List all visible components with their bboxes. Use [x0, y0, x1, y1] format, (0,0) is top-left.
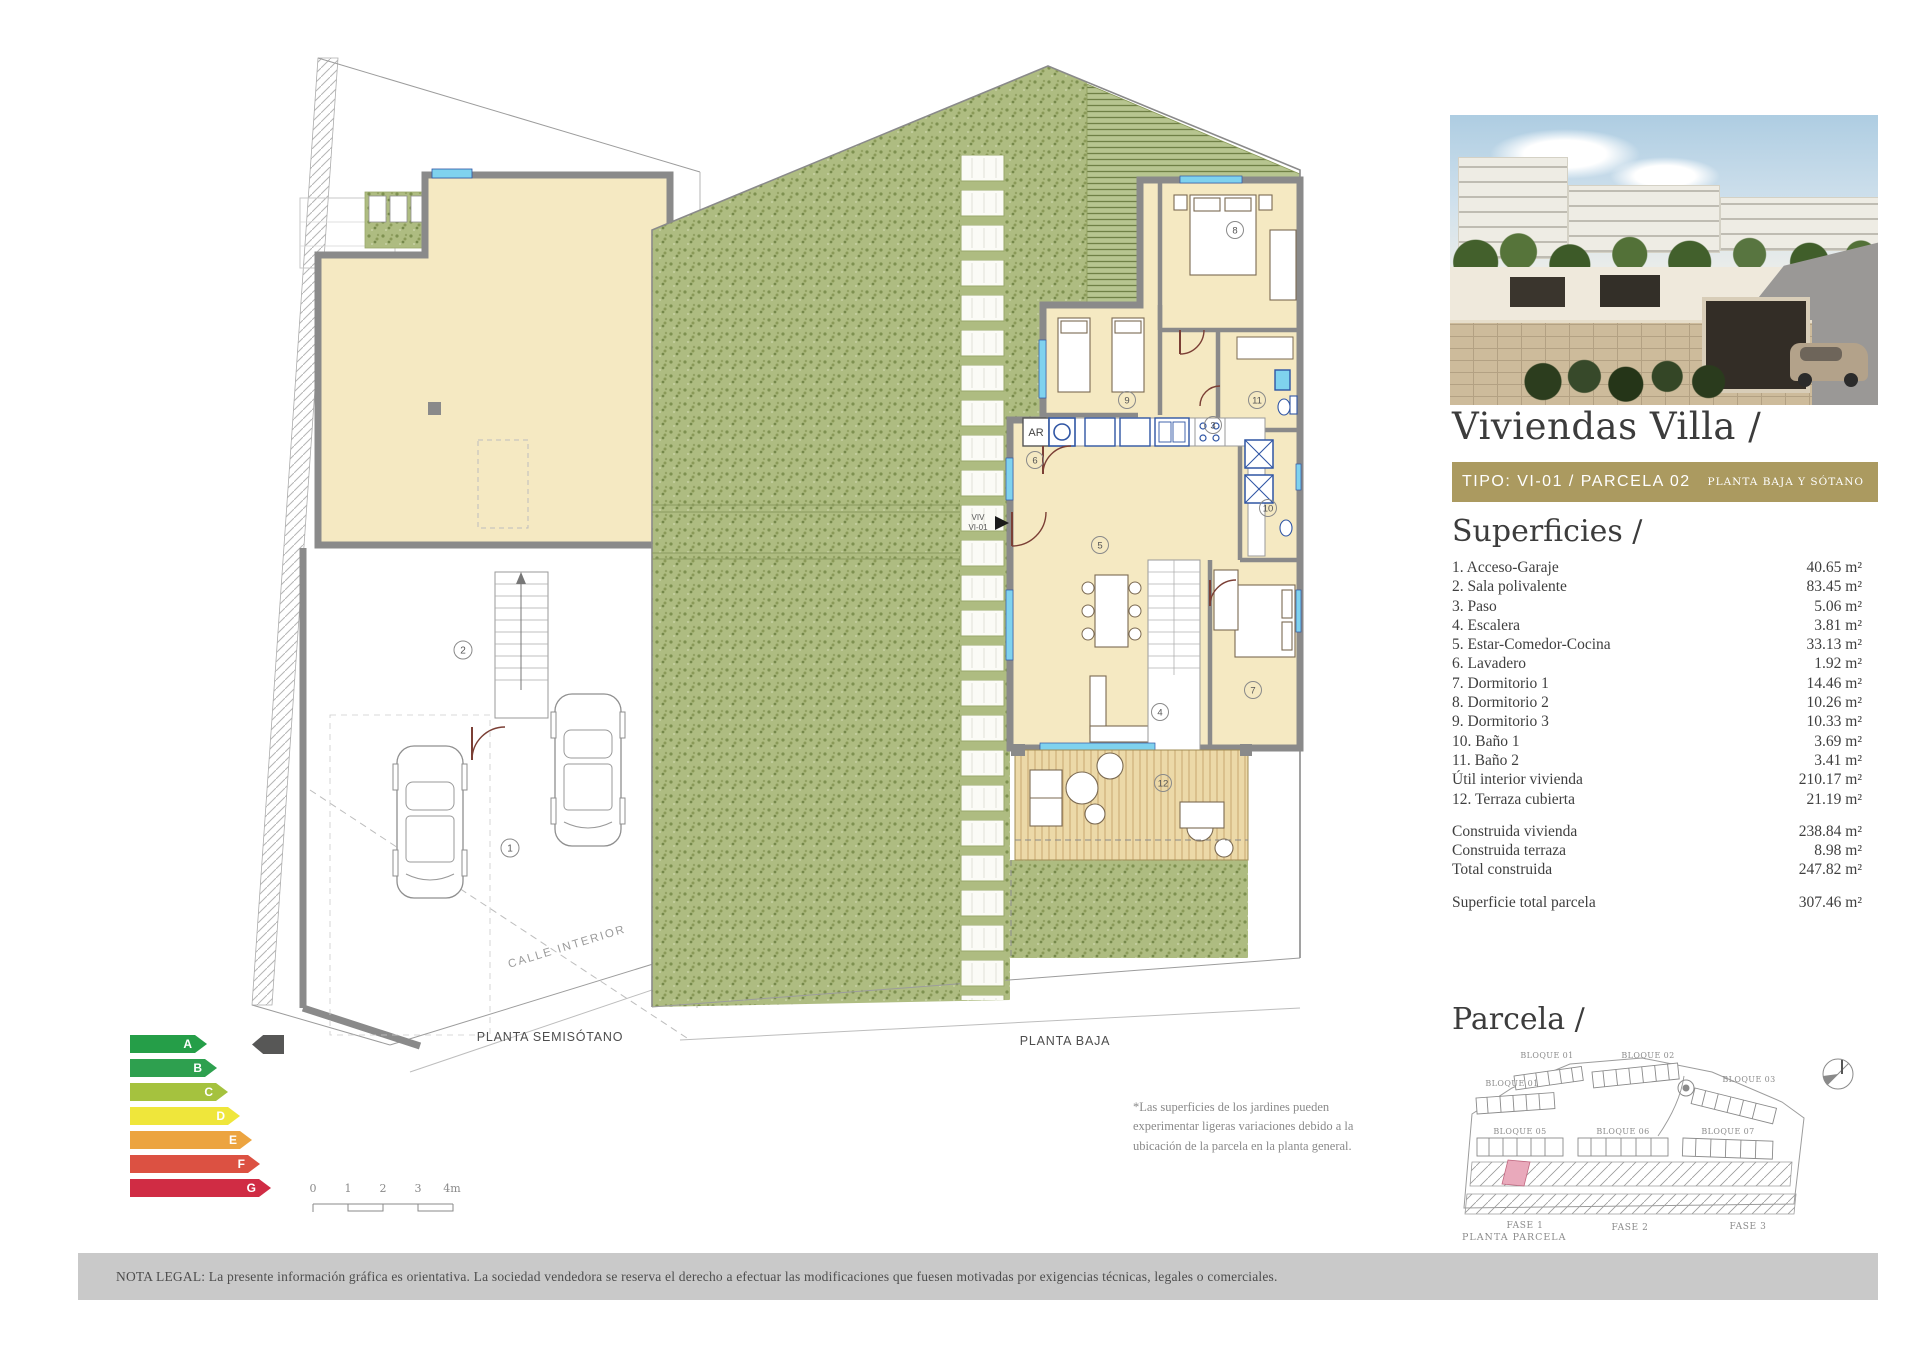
- energy-row-a: A: [130, 1035, 320, 1053]
- table-row: 10. Baño 13.69 m²: [1452, 732, 1862, 751]
- svg-text:1: 1: [345, 1182, 352, 1195]
- superficies-heading: Superficies /: [1452, 514, 1642, 549]
- parking-row: [1465, 1194, 1796, 1214]
- energy-row-e: E: [130, 1131, 320, 1149]
- window: [432, 169, 472, 178]
- pillar: [428, 402, 441, 415]
- bushes: [1520, 353, 1750, 405]
- wheel: [1798, 373, 1812, 387]
- energy-row-b: B: [130, 1059, 320, 1077]
- room-number: 2: [454, 641, 472, 659]
- svg-text:11: 11: [1252, 396, 1262, 407]
- svg-text:8: 8: [1232, 226, 1237, 237]
- table-row: Útil interior vivienda210.17 m²: [1452, 770, 1862, 789]
- svg-text:9: 9: [1124, 396, 1129, 407]
- table-row: Total construida247.82 m²: [1452, 860, 1862, 879]
- table-row: 9. Dormitorio 310.33 m²: [1452, 712, 1862, 731]
- energy-arrow-icon: F: [130, 1155, 260, 1173]
- svg-text:VI-01: VI-01: [968, 523, 988, 532]
- caption-semisotano: PLANTA SEMISÓTANO: [380, 1030, 720, 1044]
- svg-text:5: 5: [1097, 541, 1102, 552]
- car-icon: [551, 694, 625, 846]
- table-row: 5. Estar-Comedor-Cocina33.13 m²: [1452, 635, 1862, 654]
- svg-text:BLOQUE 03: BLOQUE 03: [1722, 1075, 1775, 1084]
- energy-arrow-icon: D: [130, 1107, 240, 1125]
- type-label: TIPO: VI-01 / PARCELA 02: [1452, 473, 1691, 491]
- villa-window: [1600, 275, 1660, 307]
- bloque-labels: BLOQUE 01 BLOQUE 02 BLOQUE 03 BLOQUE 01 …: [1485, 1051, 1775, 1136]
- floor-label: PLANTA BAJA Y SÓTANO: [1708, 476, 1878, 488]
- table-row-grand-total: Superficie total parcela307.46 m²: [1452, 893, 1862, 912]
- svg-text:BLOQUE 07: BLOQUE 07: [1701, 1127, 1754, 1136]
- svg-text:BLOQUE 01: BLOQUE 01: [1520, 1051, 1573, 1060]
- svg-text:BLOQUE 01: BLOQUE 01: [1485, 1079, 1538, 1088]
- energy-rating-chart: A B C D E F: [130, 1035, 320, 1203]
- table-row: 7. Dormitorio 114.46 m²: [1452, 674, 1862, 693]
- table-row: Construida terraza8.98 m²: [1452, 841, 1862, 860]
- svg-text:3: 3: [415, 1182, 422, 1195]
- table-row: Construida vivienda238.84 m²: [1452, 822, 1862, 841]
- site-road: [1658, 1076, 1684, 1136]
- svg-text:0: 0: [310, 1182, 317, 1195]
- svg-text:1: 1: [507, 844, 513, 855]
- room-number: 1: [501, 839, 519, 857]
- energy-arrow-icon: A: [130, 1035, 207, 1053]
- garden-footnote: *Las superficies de los jardines pueden …: [1133, 1098, 1383, 1156]
- svg-text:FASE 1: FASE 1: [1507, 1221, 1544, 1231]
- north-compass-icon: [1823, 1059, 1853, 1089]
- parcela-heading: Parcela /: [1452, 1002, 1585, 1037]
- svg-text:4m: 4m: [443, 1182, 461, 1195]
- driveway-dashed: [310, 790, 690, 1040]
- caption-baja: PLANTA BAJA: [950, 1034, 1180, 1048]
- hero-photo: [1450, 115, 1878, 405]
- svg-text:4: 4: [1157, 708, 1162, 719]
- garden-strip: [1010, 860, 1248, 958]
- svg-text:12: 12: [1158, 779, 1169, 790]
- table-row: 4. Escalera3.81 m²: [1452, 616, 1862, 635]
- wheel: [1844, 373, 1858, 387]
- car: [1790, 343, 1868, 381]
- svg-text:2: 2: [380, 1182, 387, 1195]
- svg-text:VIV: VIV: [972, 513, 986, 522]
- street-label: CALLE INTERIOR: [507, 923, 628, 970]
- door: [472, 727, 505, 760]
- table-row: 12. Terraza cubierta21.19 m²: [1452, 790, 1862, 809]
- page-title: Viviendas Villa /: [1452, 405, 1761, 448]
- table-row: 2. Sala polivalente83.45 m²: [1452, 577, 1862, 596]
- svg-text:3: 3: [1210, 421, 1215, 432]
- svg-text:FASE 2: FASE 2: [1612, 1223, 1649, 1233]
- energy-row-d: D: [130, 1107, 320, 1125]
- table-row: 11. Baño 23.41 m²: [1452, 751, 1862, 770]
- site-plan-caption: PLANTA PARCELA: [1462, 1232, 1566, 1243]
- energy-pointer-icon: [252, 1035, 284, 1054]
- table-row: 8. Dormitorio 210.26 m²: [1452, 693, 1862, 712]
- ar-label: AR: [1028, 427, 1043, 439]
- svg-text:10: 10: [1263, 504, 1274, 515]
- energy-row-g: G: [130, 1179, 320, 1197]
- brochure-page: 2 1 CALLE INTERIOR: [0, 0, 1920, 1357]
- svg-text:7: 7: [1250, 686, 1255, 697]
- table-row: 6. Lavadero1.92 m²: [1452, 654, 1862, 673]
- energy-row-f: F: [130, 1155, 320, 1173]
- type-bar: TIPO: VI-01 / PARCELA 02 PLANTA BAJA Y S…: [1452, 462, 1878, 502]
- svg-text:2: 2: [460, 646, 466, 657]
- energy-arrow-icon: B: [130, 1059, 217, 1077]
- svg-text:FASE 3: FASE 3: [1730, 1222, 1767, 1232]
- energy-arrow-icon: C: [130, 1083, 228, 1101]
- terrace-deck: [1011, 744, 1252, 860]
- svg-text:6: 6: [1032, 456, 1037, 467]
- table-row: 3. Paso5.06 m²: [1452, 597, 1862, 616]
- svg-text:BLOQUE 06: BLOQUE 06: [1596, 1127, 1649, 1136]
- site-plan: BLOQUE 01 BLOQUE 02 BLOQUE 03 BLOQUE 01 …: [1452, 1046, 1878, 1246]
- scale-bar: 0 1 2 3 4m: [300, 1178, 475, 1223]
- villa-window: [1510, 277, 1565, 307]
- energy-row-c: C: [130, 1083, 320, 1101]
- svg-text:BLOQUE 02: BLOQUE 02: [1621, 1051, 1674, 1060]
- svg-text:BLOQUE 05: BLOQUE 05: [1493, 1127, 1546, 1136]
- floorplan-baja: AR: [640, 50, 1320, 1110]
- legal-note-text: NOTA LEGAL: La presente información gráf…: [78, 1269, 1278, 1285]
- stepping-stones: [960, 155, 1005, 1000]
- stairs: [1148, 560, 1200, 750]
- car-icon: [393, 746, 467, 898]
- superficies-table: 1. Acceso-Garaje40.65 m² 2. Sala polival…: [1452, 558, 1862, 912]
- table-row: 1. Acceso-Garaje40.65 m²: [1452, 558, 1862, 577]
- energy-arrow-icon: E: [130, 1131, 252, 1149]
- legal-bar: NOTA LEGAL: La presente información gráf…: [78, 1253, 1878, 1300]
- energy-arrow-icon: G: [130, 1179, 271, 1197]
